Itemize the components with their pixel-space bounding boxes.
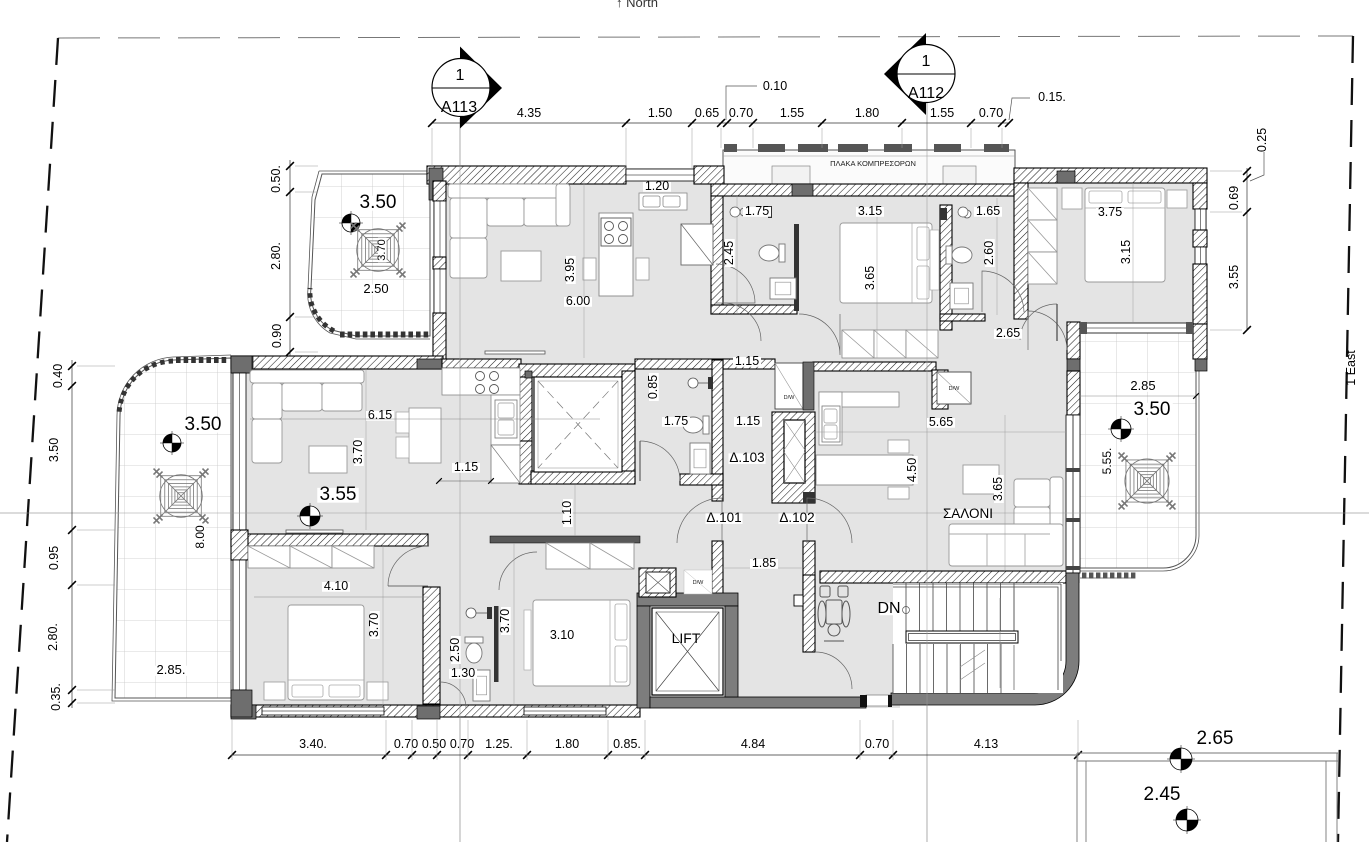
svg-text:2.45: 2.45: [722, 241, 736, 265]
svg-text:LIFT: LIFT: [672, 630, 701, 646]
svg-text:2.45: 2.45: [1144, 784, 1181, 805]
svg-text:3.10: 3.10: [550, 628, 574, 642]
svg-text:1 East: 1 East: [1344, 350, 1358, 386]
svg-text:A113: A113: [441, 99, 477, 116]
svg-text:0.95: 0.95: [47, 546, 61, 570]
svg-text:2.85: 2.85: [1130, 378, 1155, 393]
svg-text:0.40: 0.40: [51, 364, 65, 388]
svg-text:A112: A112: [908, 85, 944, 102]
svg-text:3.75: 3.75: [1098, 205, 1122, 219]
svg-text:3.55: 3.55: [1227, 265, 1241, 289]
svg-text:1.50: 1.50: [648, 106, 672, 120]
svg-text:1.75: 1.75: [745, 204, 769, 218]
svg-text:1: 1: [922, 53, 931, 70]
svg-text:2.50: 2.50: [363, 281, 388, 296]
svg-text:1.15: 1.15: [736, 414, 760, 428]
svg-text:6.15: 6.15: [368, 408, 392, 422]
svg-text:6.00: 6.00: [566, 294, 590, 308]
svg-text:1.75: 1.75: [664, 414, 688, 428]
svg-text:0.15.: 0.15.: [1038, 90, 1066, 104]
svg-text:3.55: 3.55: [320, 484, 357, 505]
svg-text:2.80.: 2.80.: [269, 242, 283, 270]
svg-text:1.85: 1.85: [752, 556, 776, 570]
svg-text:1.10: 1.10: [560, 501, 574, 525]
svg-text:0.50.: 0.50.: [269, 165, 283, 193]
svg-text:3.95: 3.95: [563, 258, 577, 282]
svg-text:1.80: 1.80: [855, 106, 879, 120]
svg-text:ΣΑΛΟΝΙ: ΣΑΛΟΝΙ: [943, 506, 993, 521]
svg-text:0.90: 0.90: [270, 324, 284, 348]
svg-text:1.30: 1.30: [451, 666, 475, 680]
svg-text:3.50: 3.50: [1134, 399, 1171, 420]
svg-text:5.55.: 5.55.: [1100, 448, 1114, 475]
svg-text:0.50: 0.50: [422, 737, 446, 751]
svg-text:3.65: 3.65: [863, 266, 877, 290]
svg-text:0.35.: 0.35.: [49, 683, 63, 711]
svg-text:8.00: 8.00: [193, 525, 207, 549]
svg-text:2.85.: 2.85.: [157, 662, 186, 677]
svg-text:0.70: 0.70: [450, 737, 474, 751]
svg-text:3.65: 3.65: [991, 477, 1005, 501]
svg-text:ΠΛΑΚΑ ΚΟΜΠΡΕΣΟΡΩΝ: ΠΛΑΚΑ ΚΟΜΠΡΕΣΟΡΩΝ: [830, 159, 916, 168]
svg-text:D/W: D/W: [693, 580, 705, 586]
svg-text:Δ.103: Δ.103: [729, 450, 764, 465]
svg-text:2.60: 2.60: [982, 241, 996, 265]
svg-text:2.65: 2.65: [996, 326, 1020, 340]
svg-text:3.50: 3.50: [360, 192, 397, 213]
svg-text:2.80.: 2.80.: [46, 623, 60, 651]
svg-text:1.65: 1.65: [976, 204, 1000, 218]
svg-text:4.13: 4.13: [974, 737, 998, 751]
svg-text:3.15: 3.15: [858, 204, 882, 218]
svg-text:5.65: 5.65: [929, 415, 953, 429]
svg-text:0.25: 0.25: [1255, 128, 1269, 152]
svg-text:↑ North: ↑ North: [616, 0, 658, 10]
svg-text:0.85: 0.85: [646, 375, 660, 399]
svg-text:3.50: 3.50: [185, 414, 222, 435]
svg-text:3.15: 3.15: [1119, 240, 1133, 264]
svg-text:3.70: 3.70: [351, 440, 365, 464]
svg-text:3.70: 3.70: [498, 609, 512, 633]
svg-text:Δ.102: Δ.102: [779, 510, 814, 525]
svg-text:4.35: 4.35: [517, 106, 541, 120]
svg-text:0.85.: 0.85.: [613, 737, 641, 751]
svg-text:0.70: 0.70: [729, 106, 753, 120]
svg-text:1: 1: [456, 67, 465, 84]
svg-text:0.70: 0.70: [394, 737, 418, 751]
svg-text:DN: DN: [877, 600, 900, 617]
svg-text:4.84: 4.84: [741, 737, 765, 751]
svg-text:1.55: 1.55: [780, 106, 804, 120]
svg-text:4.10: 4.10: [324, 579, 348, 593]
svg-text:0.70: 0.70: [865, 737, 889, 751]
svg-text:D/W: D/W: [949, 386, 961, 392]
svg-text:3.40.: 3.40.: [299, 737, 327, 751]
svg-text:3.70: 3.70: [367, 613, 381, 637]
svg-text:1.25.: 1.25.: [485, 737, 513, 751]
svg-text:0.70: 0.70: [979, 106, 1003, 120]
svg-text:1.80: 1.80: [555, 737, 579, 751]
svg-text:3.50: 3.50: [47, 438, 61, 462]
svg-text:D/W: D/W: [784, 395, 796, 401]
svg-text:0.10: 0.10: [763, 79, 787, 93]
svg-text:0.69: 0.69: [1227, 186, 1241, 210]
svg-text:1.20: 1.20: [645, 179, 669, 193]
svg-text:2.50: 2.50: [448, 638, 462, 662]
svg-text:1.15: 1.15: [454, 460, 478, 474]
svg-text:Δ.101: Δ.101: [706, 510, 741, 525]
svg-text:1.55: 1.55: [930, 106, 954, 120]
svg-text:3.70: 3.70: [376, 239, 388, 260]
svg-text:1.15: 1.15: [735, 354, 759, 368]
svg-text:4.50: 4.50: [905, 458, 919, 482]
svg-text:2.65: 2.65: [1197, 728, 1234, 749]
svg-text:0.65: 0.65: [695, 106, 719, 120]
